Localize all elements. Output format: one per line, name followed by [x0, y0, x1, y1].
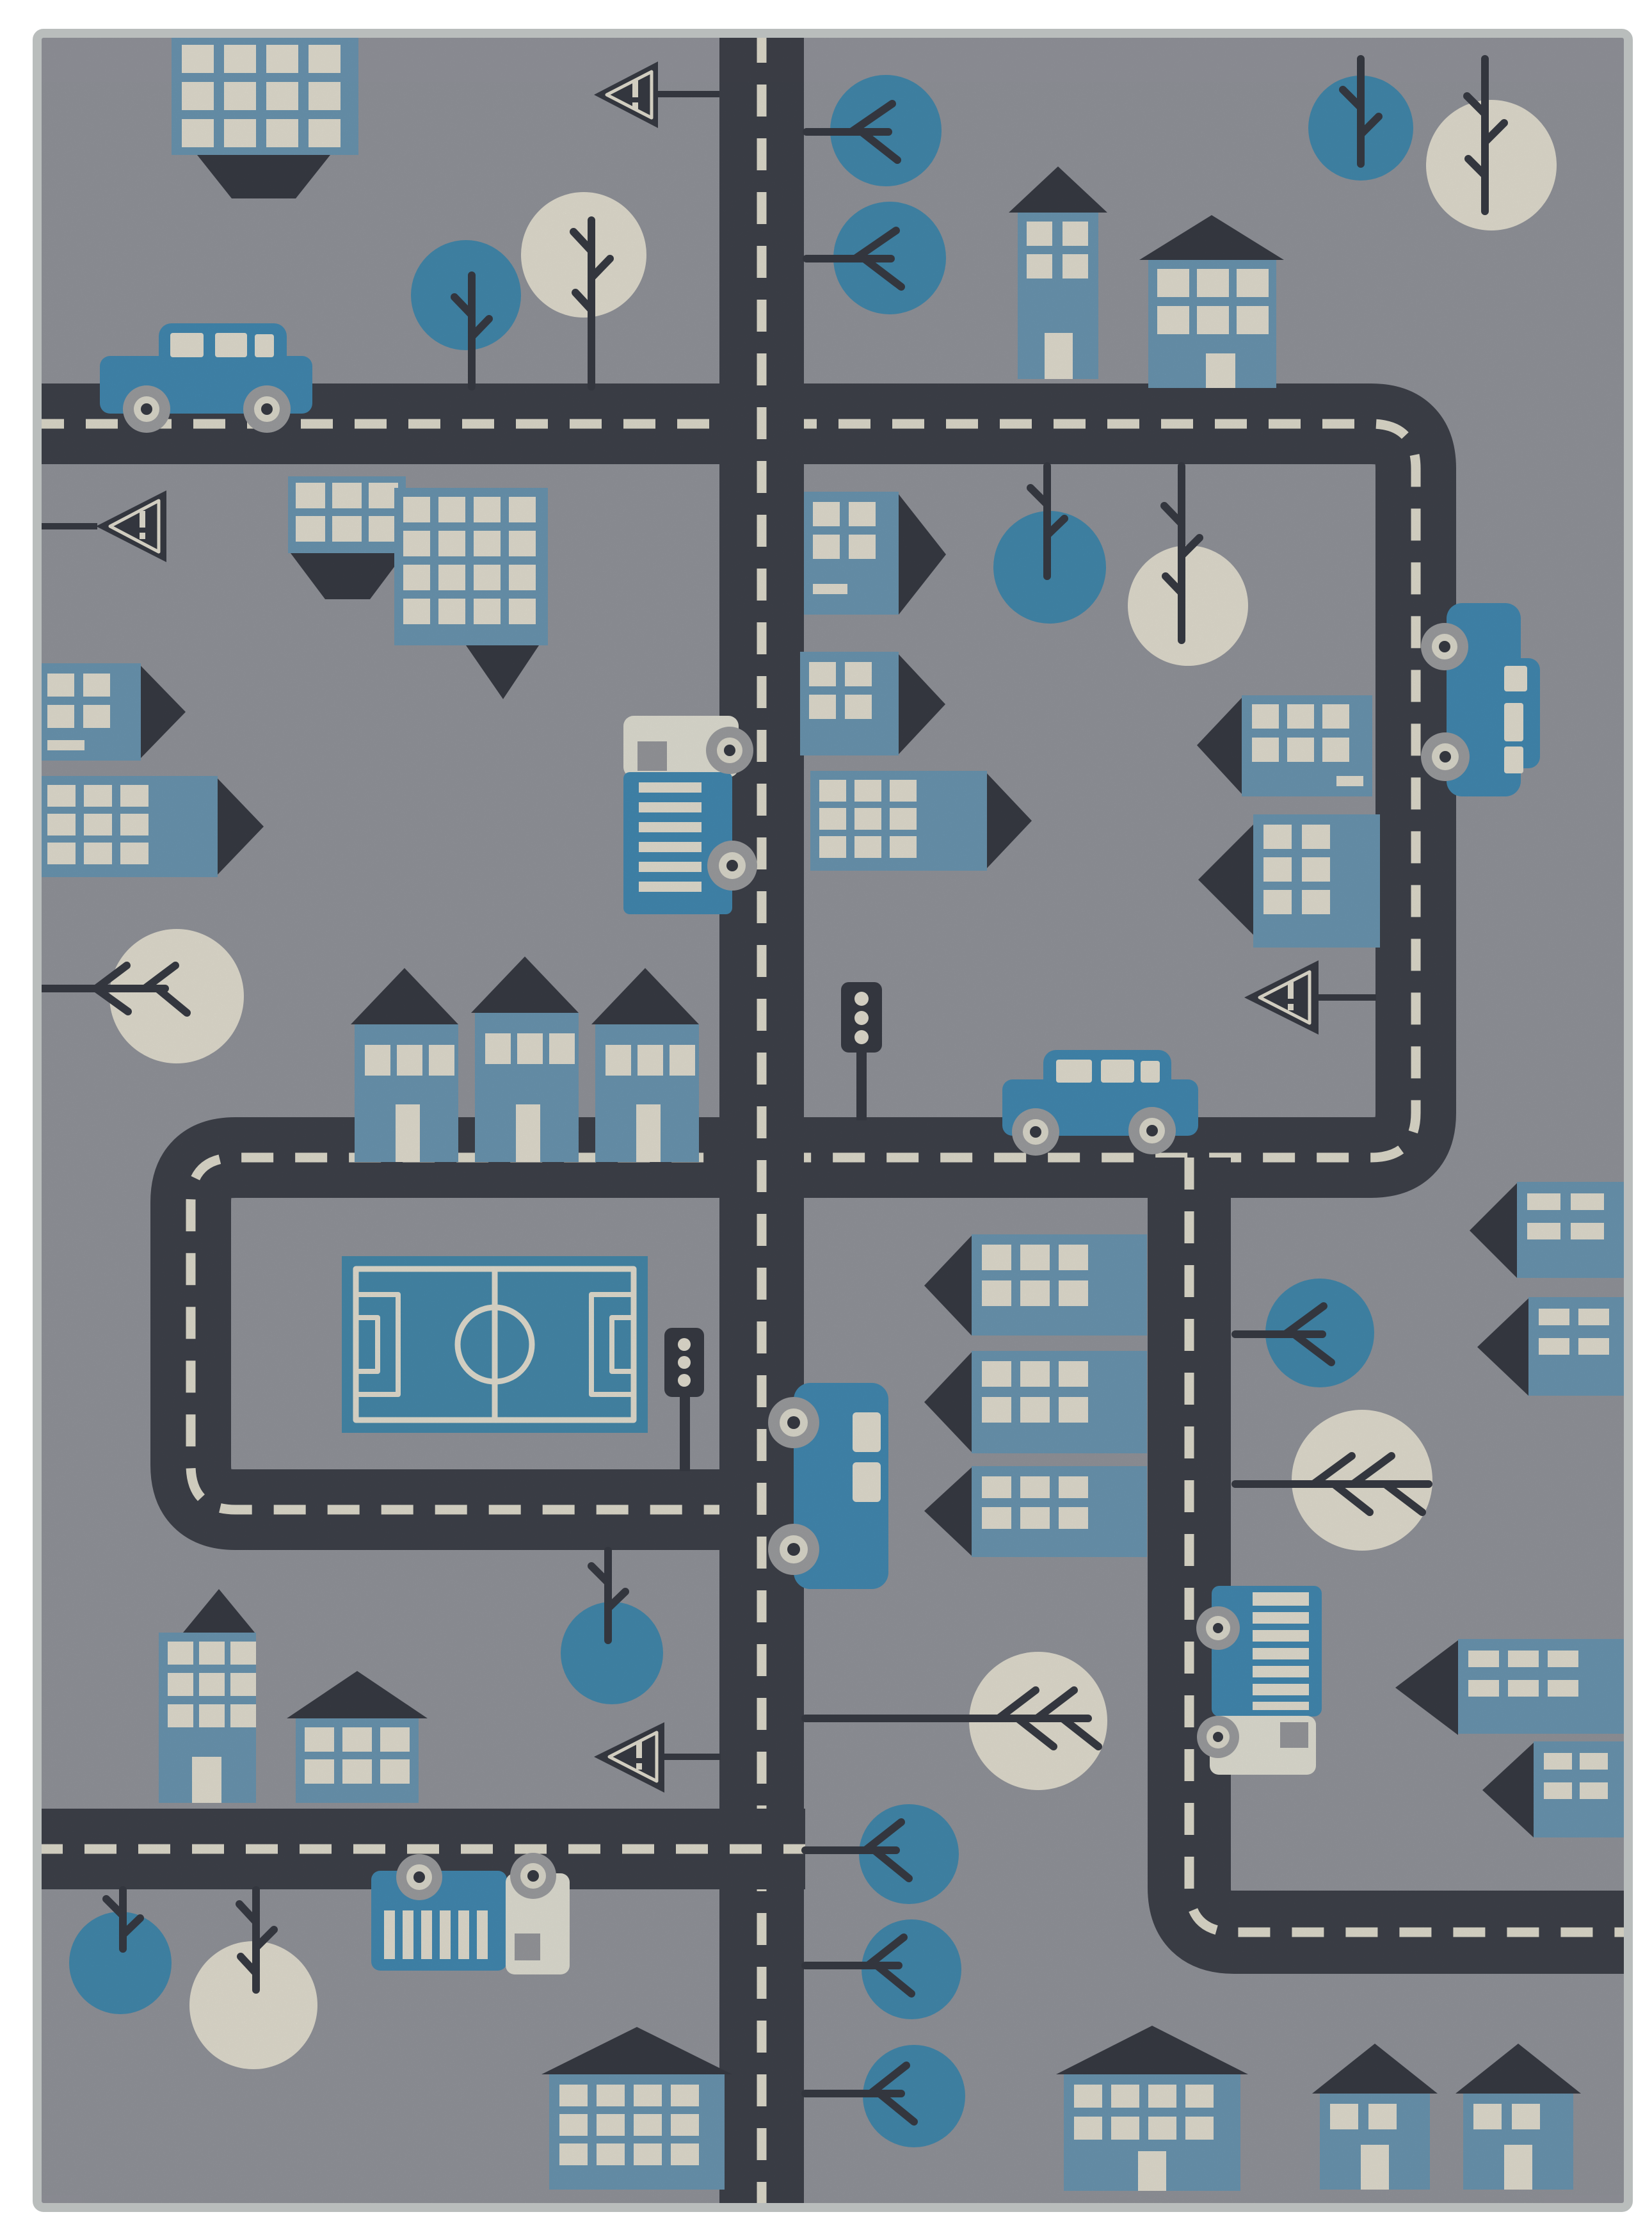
- rug-scene: [0, 0, 1652, 2228]
- rug-texture: [37, 33, 1628, 2208]
- rug: [31, 31, 1630, 2210]
- play-rug-photo: [0, 0, 1652, 2228]
